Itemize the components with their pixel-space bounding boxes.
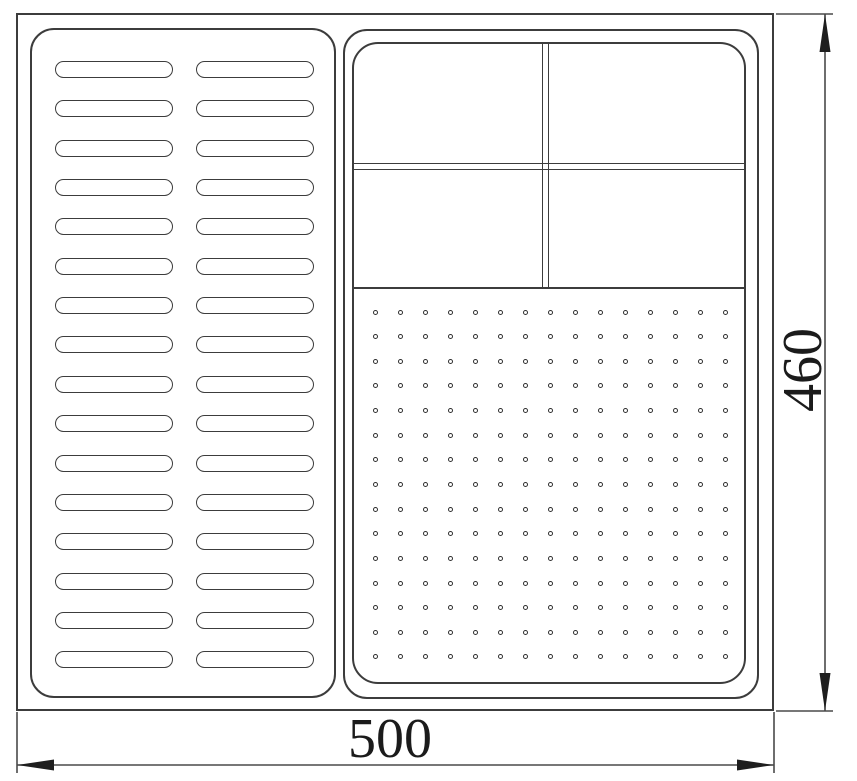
technical-drawing-canvas: 500 460 bbox=[0, 0, 857, 781]
width-dimension-arrow-right-icon bbox=[737, 760, 774, 771]
width-dimension-arrow-left-icon bbox=[17, 760, 54, 771]
dimension-overlay bbox=[0, 0, 857, 781]
height-dimension-arrow-up-icon bbox=[820, 14, 831, 52]
height-dimension-arrow-down-icon bbox=[820, 673, 831, 711]
height-dimension-label: 460 bbox=[775, 325, 831, 415]
width-dimension-label: 500 bbox=[330, 714, 450, 764]
